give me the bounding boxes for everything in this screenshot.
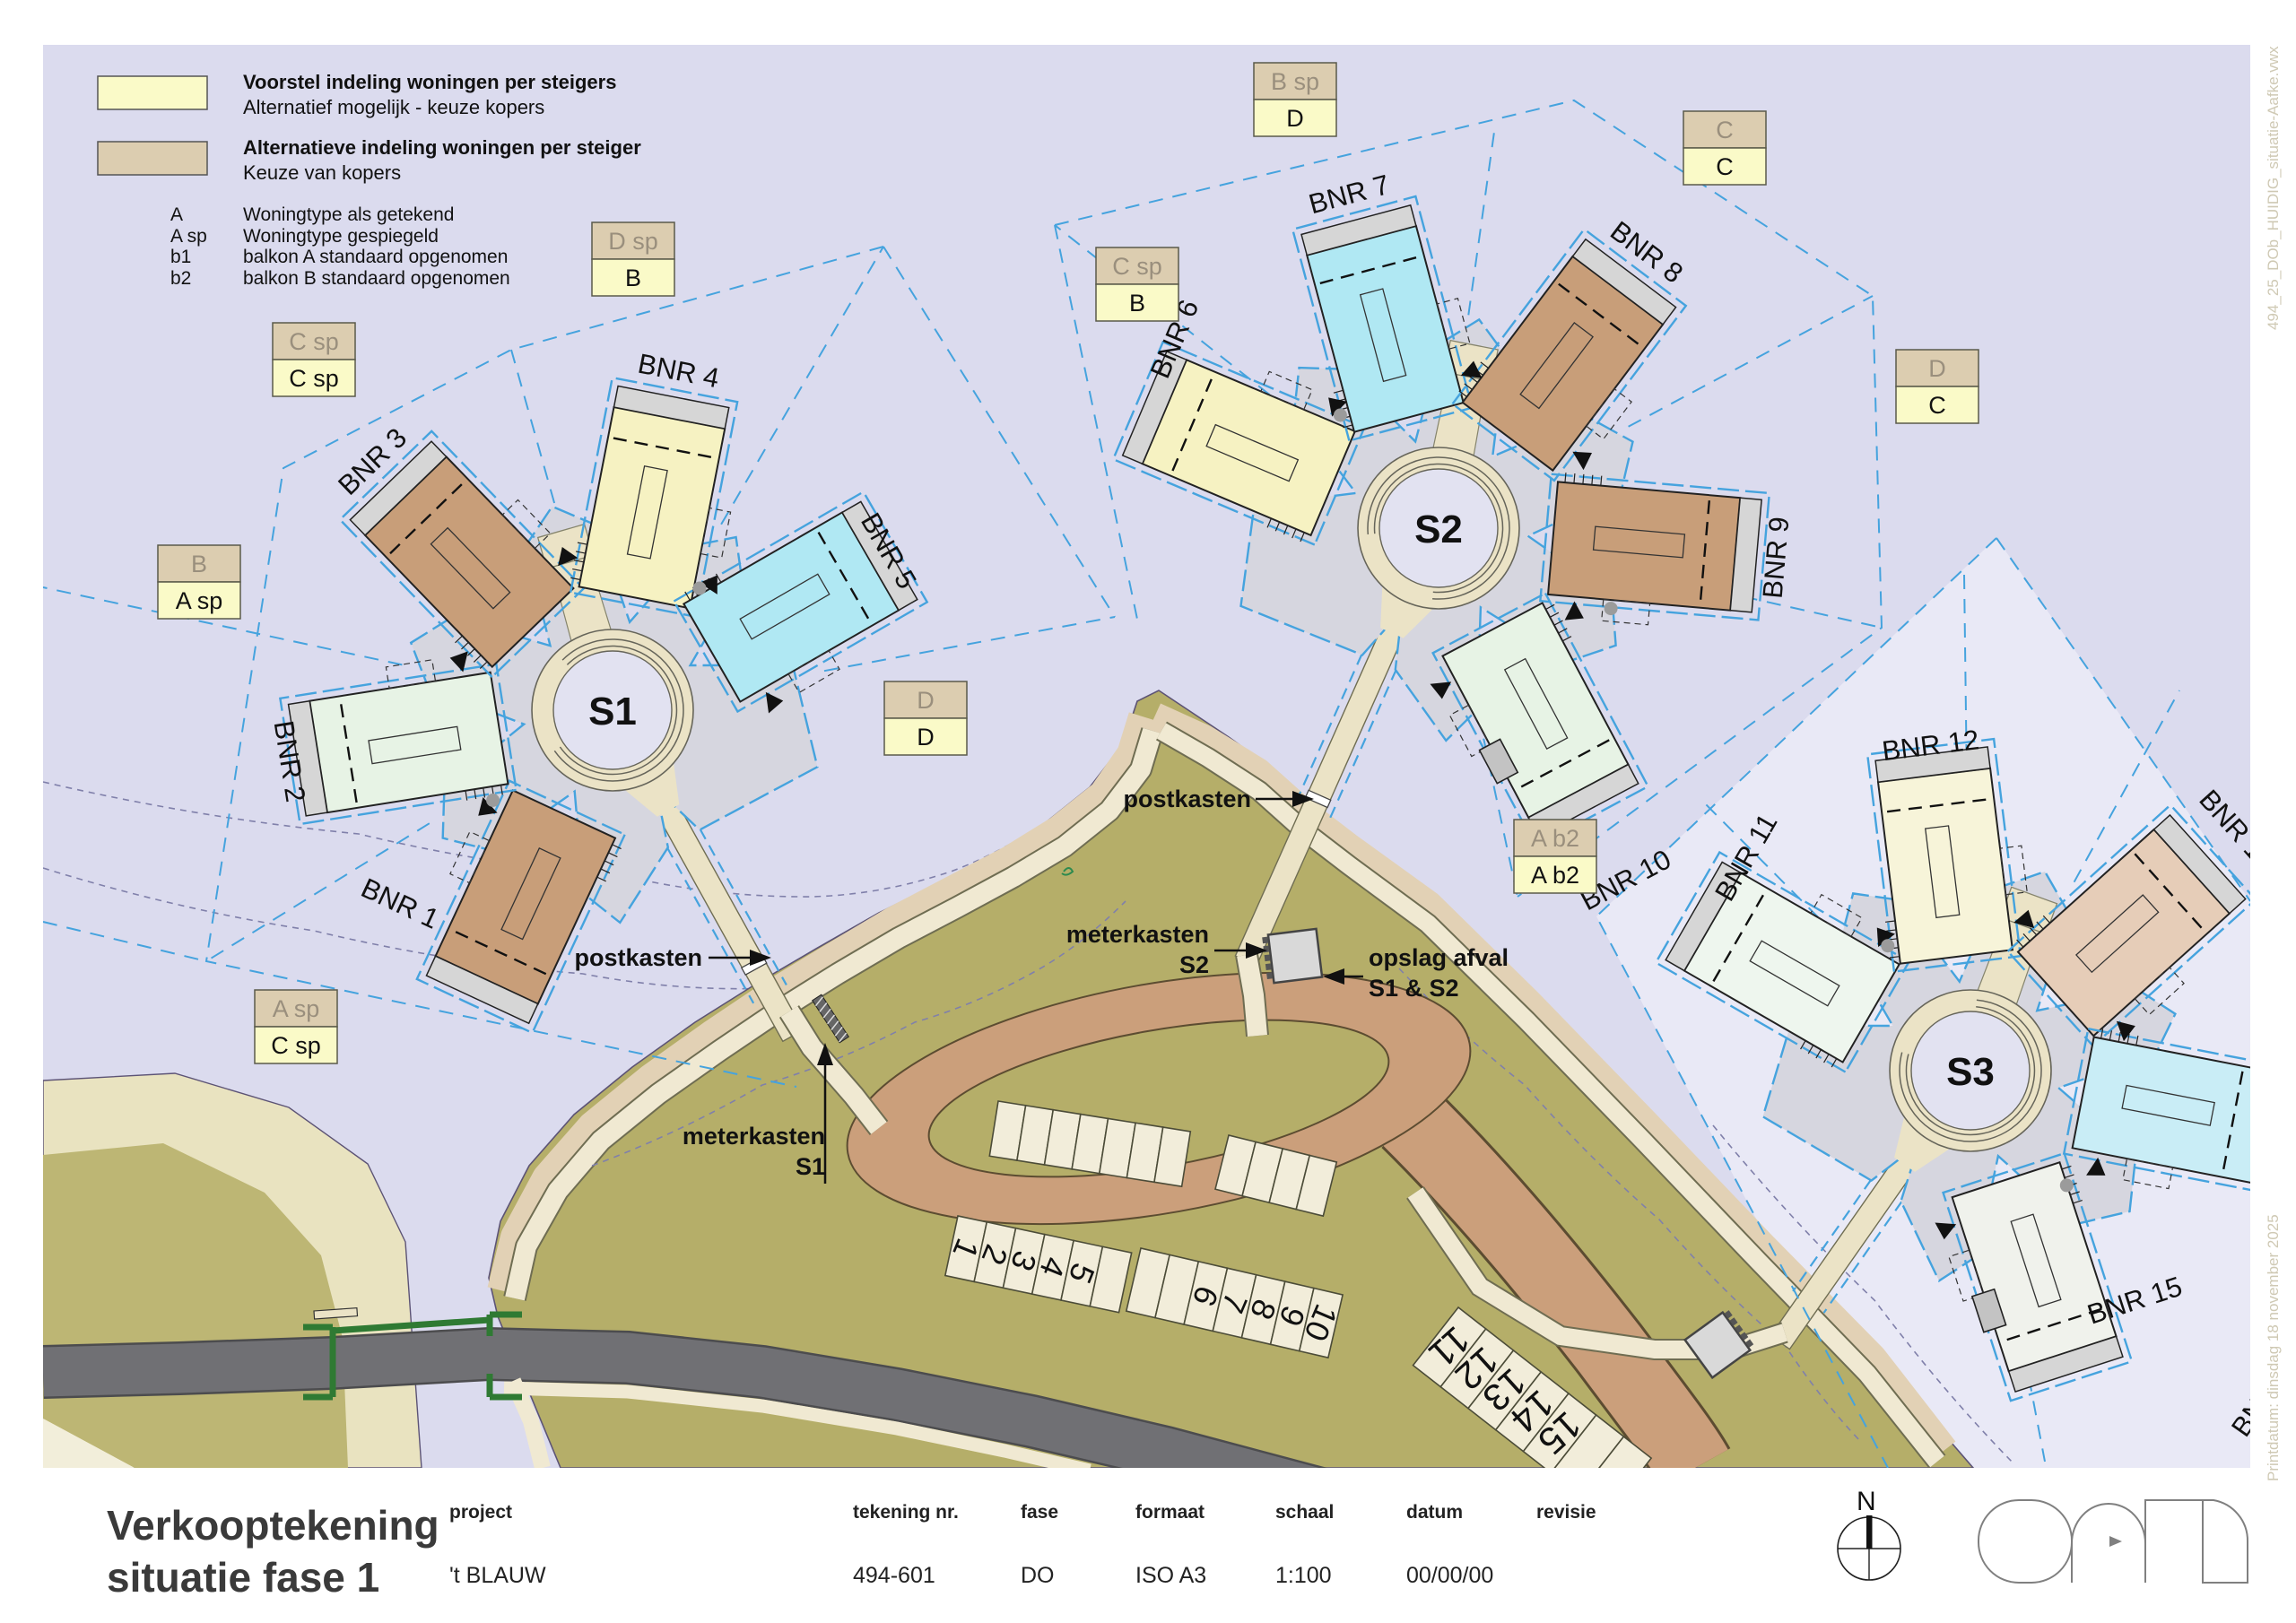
svg-text:D: D	[1286, 105, 1304, 132]
svg-text:postkasten: postkasten	[1123, 785, 1251, 812]
svg-text:A sp: A sp	[170, 226, 207, 247]
svg-text:Woningtype als getekend: Woningtype als getekend	[243, 204, 454, 225]
svg-text:S1: S1	[796, 1153, 825, 1180]
svg-text:C sp: C sp	[1112, 253, 1162, 280]
svg-text:opslag afval: opslag afval	[1369, 944, 1509, 971]
svg-text:B: B	[625, 265, 641, 291]
svg-text:'t BLAUW: 't BLAUW	[449, 1563, 546, 1588]
svg-text:C: C	[1716, 153, 1734, 180]
svg-text:Voorstel indeling woningen per: Voorstel indeling woningen per steigers	[243, 71, 616, 93]
svg-text:D: D	[917, 687, 935, 714]
svg-text:situatie fase 1: situatie fase 1	[107, 1554, 379, 1601]
svg-text:A b2: A b2	[1531, 862, 1579, 889]
svg-text:A: A	[170, 204, 183, 225]
svg-text:meterkasten: meterkasten	[683, 1123, 825, 1150]
svg-text:S2: S2	[1414, 508, 1463, 551]
svg-text:S3: S3	[1946, 1050, 1995, 1094]
svg-text:N: N	[1857, 1487, 1876, 1516]
svg-text:balkon A standaard opgenomen: balkon A standaard opgenomen	[243, 247, 508, 267]
svg-text:datum: datum	[1406, 1502, 1463, 1523]
svg-text:Alternatief mogelijk - keuze k: Alternatief mogelijk - keuze kopers	[243, 96, 544, 118]
svg-text:B: B	[1129, 290, 1145, 317]
svg-text:C sp: C sp	[289, 328, 339, 355]
svg-text:schaal: schaal	[1275, 1502, 1334, 1523]
svg-text:C: C	[1716, 117, 1734, 143]
svg-text:494-601: 494-601	[853, 1563, 935, 1588]
svg-text:A sp: A sp	[176, 587, 223, 614]
svg-text:Alternatieve indeling woningen: Alternatieve indeling woningen per steig…	[243, 136, 641, 159]
svg-text:1:100: 1:100	[1275, 1563, 1332, 1588]
svg-text:Keuze van kopers: Keuze van kopers	[243, 161, 401, 184]
svg-text:postkasten: postkasten	[574, 944, 702, 971]
svg-text:A sp: A sp	[273, 995, 320, 1022]
svg-text:project: project	[449, 1502, 512, 1523]
svg-text:D: D	[1928, 355, 1946, 382]
svg-text:D: D	[917, 724, 935, 751]
svg-text:00/00/00: 00/00/00	[1406, 1563, 1493, 1588]
svg-text:DO: DO	[1021, 1563, 1055, 1588]
svg-text:tekening nr.: tekening nr.	[853, 1502, 959, 1523]
svg-text:S1 & S2: S1 & S2	[1369, 975, 1459, 1002]
svg-text:S1: S1	[588, 690, 637, 733]
svg-text:b1: b1	[170, 247, 191, 267]
svg-text:Woningtype gespiegeld: Woningtype gespiegeld	[243, 226, 439, 247]
svg-text:D sp: D sp	[608, 228, 658, 255]
svg-text:494_25_DOb_HUIDIG_situatie-Aaf: 494_25_DOb_HUIDIG_situatie-Aafke.vwx	[2265, 46, 2282, 330]
svg-text:revisie: revisie	[1536, 1502, 1596, 1523]
svg-text:C: C	[1928, 392, 1946, 419]
svg-text:ISO A3: ISO A3	[1135, 1563, 1206, 1588]
svg-text:balkon B standaard opgenomen: balkon B standaard opgenomen	[243, 268, 510, 289]
svg-text:A b2: A b2	[1531, 825, 1579, 852]
svg-text:C sp: C sp	[271, 1032, 321, 1059]
svg-text:b2: b2	[170, 268, 191, 289]
svg-text:Verkooptekening: Verkooptekening	[107, 1502, 439, 1549]
svg-text:B: B	[191, 551, 207, 577]
svg-text:S2: S2	[1179, 951, 1209, 978]
svg-text:B sp: B sp	[1271, 68, 1319, 95]
svg-text:C sp: C sp	[289, 365, 339, 392]
svg-text:fase: fase	[1021, 1502, 1058, 1523]
svg-text:formaat: formaat	[1135, 1502, 1205, 1523]
svg-text:Printdatum: dinsdag 18 novembe: Printdatum: dinsdag 18 november 2025	[2265, 1214, 2282, 1481]
svg-text:meterkasten: meterkasten	[1066, 921, 1209, 948]
